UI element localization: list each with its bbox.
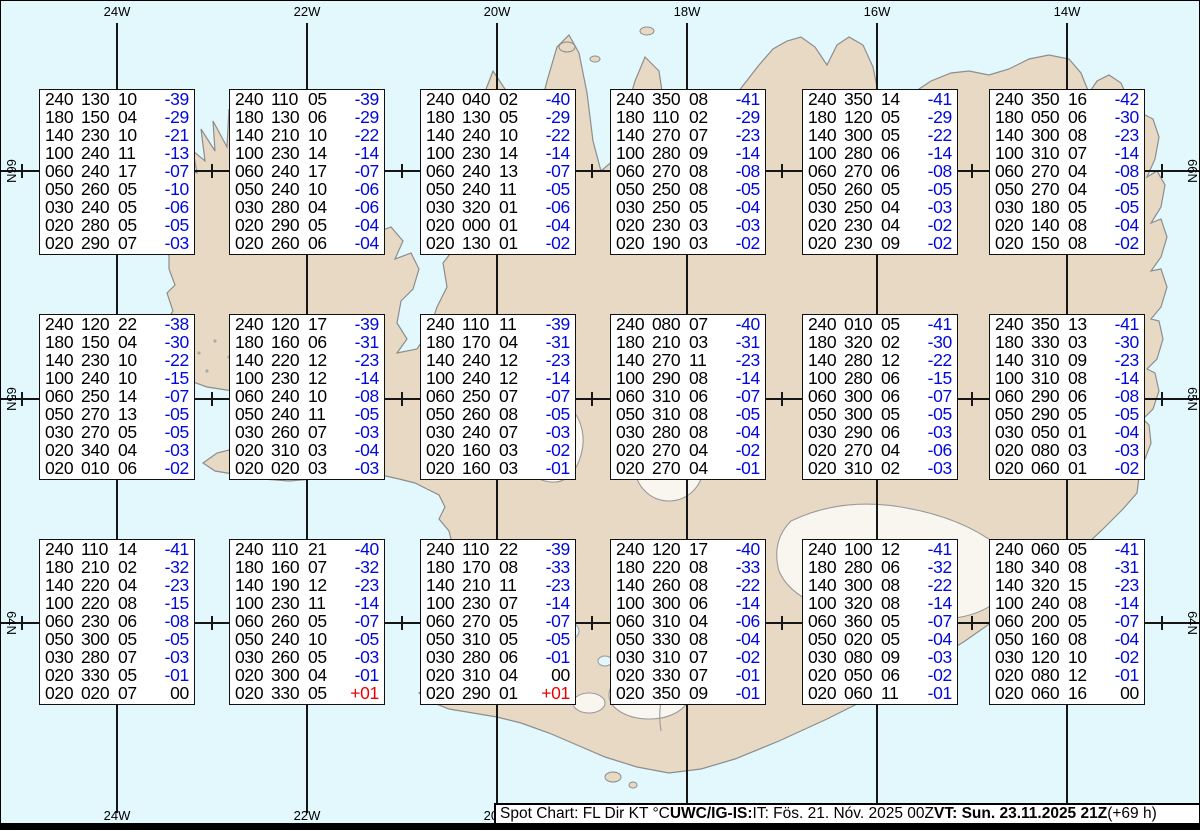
spot-data-row: 18012005-29	[808, 109, 952, 127]
fl-value: 140	[426, 352, 462, 370]
kt-value: 11	[308, 406, 334, 424]
kt-value: 06	[881, 163, 907, 181]
spot-data-row: 14030005-22	[808, 127, 952, 145]
kt-value: 08	[1068, 235, 1094, 253]
spot-data-row: 24001005-41	[808, 316, 952, 334]
kt-value: 05	[308, 649, 334, 667]
kt-value: 06	[881, 388, 907, 406]
kt-value: 17	[118, 163, 144, 181]
dir-value: 240	[271, 163, 308, 181]
spot-data-row: 10028009-14	[616, 145, 760, 163]
fl-value: 020	[45, 235, 81, 253]
fl-value: 180	[235, 334, 271, 352]
spot-data-row: 02033005-01	[45, 667, 189, 685]
temp-value: -08	[144, 613, 189, 631]
latitude-label-right: 65N	[1185, 387, 1200, 411]
temp-value: -06	[144, 199, 189, 217]
temp-value: -23	[715, 352, 760, 370]
kt-value: 05	[118, 424, 144, 442]
temp-value: -22	[144, 352, 189, 370]
kt-value: 06	[881, 424, 907, 442]
spot-chart-map: 24W24W22W22W20W20W18W18W16W16W14W14W66N6…	[0, 0, 1200, 830]
fl-value: 020	[616, 235, 652, 253]
spot-data-row: 06027006-08	[808, 163, 952, 181]
fl-value: 050	[995, 181, 1031, 199]
temp-value: -07	[525, 613, 570, 631]
spot-data-row: 05024011-05	[426, 181, 570, 199]
fl-value: 100	[426, 145, 462, 163]
kt-value: 08	[689, 559, 715, 577]
spot-data-row: 06036005-07	[808, 613, 952, 631]
fl-value: 020	[235, 442, 271, 460]
temp-value: -02	[907, 217, 952, 235]
grid-tick-icon	[205, 616, 219, 630]
fl-value: 180	[45, 559, 81, 577]
dir-value: 310	[1031, 352, 1068, 370]
temp-value: 00	[1094, 685, 1139, 703]
spot-data-row: 14030008-23	[995, 127, 1139, 145]
spot-data-row: 05024011-05	[235, 406, 379, 424]
latitude-label-right: 66N	[1185, 159, 1200, 183]
temp-value: -21	[144, 127, 189, 145]
spot-data-row: 14022012-23	[235, 352, 379, 370]
dir-value: 250	[81, 388, 118, 406]
kt-value: 08	[689, 370, 715, 388]
kt-value: 22	[499, 541, 525, 559]
dir-value: 230	[81, 613, 118, 631]
spot-data-row: 02035009-01	[616, 685, 760, 703]
spot-data-box: 24001005-4118032002-3014028012-221002800…	[802, 314, 958, 480]
dir-value: 250	[652, 199, 689, 217]
kt-value: 06	[881, 145, 907, 163]
dir-value: 280	[844, 370, 881, 388]
spot-data-row: 02029007-03	[45, 235, 189, 253]
spot-data-row: 06020005-07	[995, 613, 1139, 631]
dir-value: 310	[271, 442, 308, 460]
spot-data-row: 02033007-01	[616, 667, 760, 685]
dir-value: 150	[81, 109, 118, 127]
fl-value: 030	[235, 424, 271, 442]
temp-value: -05	[144, 217, 189, 235]
fl-value: 030	[808, 649, 844, 667]
spot-data-row: 02005006-02	[808, 667, 952, 685]
dir-value: 050	[844, 667, 881, 685]
dir-value: 270	[81, 406, 118, 424]
temp-value: -41	[907, 316, 952, 334]
fl-value: 060	[426, 388, 462, 406]
fl-value: 020	[235, 460, 271, 478]
dir-value: 120	[271, 316, 308, 334]
dir-value: 240	[462, 352, 499, 370]
spot-data-row: 10030006-14	[616, 595, 760, 613]
temp-value: -05	[334, 406, 379, 424]
dir-value: 290	[462, 685, 499, 703]
kt-value: 04	[1068, 163, 1094, 181]
dir-value: 120	[652, 541, 689, 559]
kt-value: 12	[881, 352, 907, 370]
kt-value: 05	[118, 199, 144, 217]
temp-value: -31	[715, 334, 760, 352]
latitude-label-left: 66N	[4, 159, 19, 183]
grid-tick-icon	[395, 164, 409, 178]
kt-value: 03	[689, 235, 715, 253]
dir-value: 330	[271, 685, 308, 703]
spot-data-row: 06027008-08	[616, 163, 760, 181]
spot-data-row: 06023006-08	[45, 613, 189, 631]
temp-value: -02	[1094, 460, 1139, 478]
fl-value: 020	[426, 667, 462, 685]
kt-value: 05	[499, 109, 525, 127]
kt-value: 05	[308, 685, 334, 703]
kt-value: 08	[881, 577, 907, 595]
spot-data-row: 02023003-03	[616, 217, 760, 235]
fl-value: 240	[995, 541, 1031, 559]
spot-data-row: 24004002-40	[426, 91, 570, 109]
dir-value: 290	[271, 217, 308, 235]
grid-tick-icon	[965, 164, 979, 178]
temp-value: -06	[525, 199, 570, 217]
temp-value: -32	[907, 559, 952, 577]
kt-value: 13	[1068, 316, 1094, 334]
kt-value: 10	[308, 127, 334, 145]
temp-value: -41	[907, 91, 952, 109]
spot-data-row: 24035016-42	[995, 91, 1139, 109]
dir-value: 300	[844, 388, 881, 406]
kt-value: 07	[689, 667, 715, 685]
temp-value: -31	[1094, 559, 1139, 577]
spot-data-row: 14019012-23	[235, 577, 379, 595]
spot-data-row: 05024010-06	[235, 181, 379, 199]
fl-value: 030	[808, 199, 844, 217]
fl-value: 060	[808, 613, 844, 631]
fl-value: 180	[808, 334, 844, 352]
temp-value: -29	[907, 109, 952, 127]
temp-value: -02	[1094, 235, 1139, 253]
dir-value: 280	[844, 559, 881, 577]
kt-value: 08	[499, 559, 525, 577]
fl-value: 020	[808, 685, 844, 703]
temp-value: -33	[715, 559, 760, 577]
dir-value: 230	[844, 235, 881, 253]
spot-data-row: 02001006-02	[45, 460, 189, 478]
dir-value: 180	[1031, 199, 1068, 217]
kt-value: 07	[308, 424, 334, 442]
grid-tick-icon	[1155, 164, 1169, 178]
temp-value: -02	[715, 442, 760, 460]
temp-value: -41	[144, 541, 189, 559]
dir-value: 310	[1031, 145, 1068, 163]
kt-value: 06	[1068, 388, 1094, 406]
fl-value: 020	[616, 667, 652, 685]
fl-value: 180	[45, 109, 81, 127]
fl-value: 060	[45, 163, 81, 181]
fl-value: 050	[45, 631, 81, 649]
fl-value: 100	[616, 145, 652, 163]
spot-data-row: 24012017-39	[235, 316, 379, 334]
dir-value: 210	[462, 577, 499, 595]
spot-data-row: 03025004-03	[808, 199, 952, 217]
fl-value: 140	[808, 127, 844, 145]
kt-value: 05	[881, 631, 907, 649]
spot-data-row: 24012017-40	[616, 541, 760, 559]
latitude-label-left: 64N	[4, 611, 19, 635]
spot-data-row: 03028007-03	[45, 649, 189, 667]
kt-value: 07	[689, 316, 715, 334]
temp-value: -15	[144, 370, 189, 388]
fl-value: 060	[235, 388, 271, 406]
spot-data-row: 24035014-41	[808, 91, 952, 109]
kt-value: 14	[118, 541, 144, 559]
kt-value: 12	[499, 352, 525, 370]
dir-value: 310	[652, 406, 689, 424]
temp-value: -02	[144, 460, 189, 478]
temp-value: -03	[907, 424, 952, 442]
kt-value: 05	[118, 217, 144, 235]
longitude-label-top: 14W	[1054, 5, 1081, 18]
temp-value: -01	[525, 649, 570, 667]
fl-value: 140	[235, 352, 271, 370]
temp-value: -01	[144, 667, 189, 685]
fl-value: 020	[808, 667, 844, 685]
longitude-label-bottom: 24W	[104, 809, 131, 822]
dir-value: 010	[81, 460, 118, 478]
temp-value: -39	[334, 91, 379, 109]
temp-value: -03	[334, 649, 379, 667]
spot-data-row: 05025008-05	[616, 181, 760, 199]
temp-value: -14	[715, 370, 760, 388]
temp-value: -23	[144, 577, 189, 595]
temp-value: -05	[525, 181, 570, 199]
kt-value: 10	[308, 631, 334, 649]
temp-value: -05	[144, 406, 189, 424]
fl-value: 100	[995, 595, 1031, 613]
temp-value: -39	[525, 316, 570, 334]
fl-value: 020	[426, 685, 462, 703]
fl-value: 100	[45, 595, 81, 613]
spot-data-row: 03029006-03	[808, 424, 952, 442]
dir-value: 220	[81, 595, 118, 613]
spot-data-row: 02006001-02	[995, 460, 1139, 478]
spot-data-row: 05027004-05	[995, 181, 1139, 199]
spot-data-row: 10022008-15	[45, 595, 189, 613]
kt-value: 06	[689, 388, 715, 406]
fl-value: 060	[426, 163, 462, 181]
longitude-label-top: 16W	[864, 5, 891, 18]
latitude-label-right: 64N	[1185, 611, 1200, 635]
fl-value: 020	[995, 442, 1031, 460]
fl-value: 140	[616, 577, 652, 595]
fl-value: 180	[235, 559, 271, 577]
status-text-part: (+69 h)	[1107, 805, 1157, 823]
temp-value: -31	[334, 334, 379, 352]
temp-value: -05	[1094, 199, 1139, 217]
kt-value: 12	[881, 541, 907, 559]
fl-value: 050	[808, 406, 844, 424]
grid-tick-icon	[1155, 392, 1169, 406]
kt-value: 04	[689, 613, 715, 631]
fl-value: 030	[45, 649, 81, 667]
spot-data-row: 24011022-39	[426, 541, 570, 559]
spot-data-row: 06024017-07	[45, 163, 189, 181]
temp-value: -14	[1094, 595, 1139, 613]
kt-value: 02	[499, 91, 525, 109]
kt-value: 12	[1068, 667, 1094, 685]
kt-value: 12	[499, 370, 525, 388]
dir-value: 110	[462, 541, 499, 559]
temp-value: -01	[715, 685, 760, 703]
dir-value: 310	[1031, 370, 1068, 388]
dir-value: 040	[462, 91, 499, 109]
fl-value: 100	[426, 595, 462, 613]
fl-value: 140	[616, 127, 652, 145]
dir-value: 230	[271, 595, 308, 613]
temp-value: -14	[334, 145, 379, 163]
kt-value: 04	[118, 334, 144, 352]
fl-value: 100	[235, 595, 271, 613]
dir-value: 130	[271, 109, 308, 127]
latitude-label-left: 65N	[4, 387, 19, 411]
temp-value: -08	[1094, 163, 1139, 181]
status-text-part: UWC/IG-IS:	[670, 805, 753, 823]
temp-value: -23	[1094, 577, 1139, 595]
dir-value: 280	[652, 424, 689, 442]
temp-value: 00	[525, 667, 570, 685]
spot-data-box: 24012017-4018022008-3314026008-221003000…	[610, 539, 766, 705]
temp-value: -02	[715, 649, 760, 667]
dir-value: 260	[271, 424, 308, 442]
kt-value: 14	[308, 145, 334, 163]
kt-value: 04	[118, 442, 144, 460]
kt-value: 03	[1068, 442, 1094, 460]
dir-value: 330	[1031, 334, 1068, 352]
spot-data-row: 10032008-14	[808, 595, 952, 613]
dir-value: 140	[1031, 217, 1068, 235]
spot-data-row: 03005001-04	[995, 424, 1139, 442]
temp-value: -40	[715, 316, 760, 334]
kt-value: 06	[118, 613, 144, 631]
dir-value: 250	[462, 388, 499, 406]
spot-data-row: 10024012-14	[426, 370, 570, 388]
dir-value: 270	[1031, 181, 1068, 199]
spot-data-row: 10023014-14	[426, 145, 570, 163]
fl-value: 240	[235, 316, 271, 334]
temp-value: -29	[334, 109, 379, 127]
kt-value: 05	[689, 199, 715, 217]
status-bar: Spot Chart: FL Dir KT °C UWC/IG-IS: IT: …	[494, 803, 1200, 825]
fl-value: 030	[426, 424, 462, 442]
temp-value: -22	[907, 127, 952, 145]
dir-value: 270	[652, 442, 689, 460]
temp-value: -33	[525, 559, 570, 577]
fl-value: 060	[45, 388, 81, 406]
temp-value: -03	[907, 199, 952, 217]
temp-value: -03	[907, 649, 952, 667]
fl-value: 050	[45, 406, 81, 424]
dir-value: 270	[652, 460, 689, 478]
spot-data-row: 0200200700	[45, 685, 189, 703]
spot-data-row: 02008003-03	[995, 442, 1139, 460]
temp-value: -08	[1094, 388, 1139, 406]
kt-value: 06	[308, 109, 334, 127]
spot-data-row: 05016008-04	[995, 631, 1139, 649]
kt-value: 05	[308, 613, 334, 631]
status-text-part: Spot Chart: FL Dir KT °C	[500, 805, 670, 823]
spot-data-row: 02008012-01	[995, 667, 1139, 685]
spot-data-row: 24013010-39	[45, 91, 189, 109]
spot-data-box: 24013010-3918015004-2914023010-211002401…	[39, 89, 195, 255]
kt-value: 07	[499, 424, 525, 442]
dir-value: 240	[271, 181, 308, 199]
dir-value: 060	[1031, 460, 1068, 478]
dir-value: 150	[1031, 235, 1068, 253]
fl-value: 100	[45, 370, 81, 388]
temp-value: -39	[334, 316, 379, 334]
dir-value: 260	[271, 235, 308, 253]
temp-value: -04	[715, 424, 760, 442]
kt-value: 07	[499, 388, 525, 406]
dir-value: 240	[81, 145, 118, 163]
dir-value: 290	[1031, 388, 1068, 406]
fl-value: 020	[235, 685, 271, 703]
dir-value: 300	[652, 595, 689, 613]
fl-value: 180	[45, 334, 81, 352]
spot-data-row: 02029005-04	[235, 217, 379, 235]
fl-value: 030	[235, 649, 271, 667]
spot-data-row: 18013006-29	[235, 109, 379, 127]
spot-data-row: 24035008-41	[616, 91, 760, 109]
dir-value: 060	[1031, 685, 1068, 703]
spot-data-row: 02016003-02	[426, 442, 570, 460]
kt-value: 11	[499, 577, 525, 595]
dir-value: 230	[844, 217, 881, 235]
fl-value: 100	[808, 370, 844, 388]
temp-value: -15	[144, 595, 189, 613]
kt-value: 07	[689, 649, 715, 667]
spot-data-row: 18021002-32	[45, 559, 189, 577]
kt-value: 05	[881, 127, 907, 145]
temp-value: -05	[334, 631, 379, 649]
spot-data-row: 05027013-05	[45, 406, 189, 424]
spot-data-row: 06024017-07	[235, 163, 379, 181]
temp-value: -04	[1094, 217, 1139, 235]
temp-value: -01	[715, 460, 760, 478]
spot-data-row: 18017008-33	[426, 559, 570, 577]
fl-value: 060	[235, 163, 271, 181]
spot-data-row: 03012010-02	[995, 649, 1139, 667]
fl-value: 050	[995, 631, 1031, 649]
fl-value: 020	[808, 235, 844, 253]
kt-value: 06	[308, 334, 334, 352]
kt-value: 17	[308, 316, 334, 334]
spot-data-box: 24012017-3918016006-3114022012-231002301…	[229, 314, 385, 480]
dir-value: 190	[271, 577, 308, 595]
spot-data-row: 02028005-05	[45, 217, 189, 235]
temp-value: -04	[907, 631, 952, 649]
fl-value: 050	[808, 181, 844, 199]
fl-value: 180	[426, 109, 462, 127]
dir-value: 220	[652, 559, 689, 577]
dir-value: 230	[81, 352, 118, 370]
temp-value: -14	[1094, 370, 1139, 388]
dir-value: 330	[81, 667, 118, 685]
fl-value: 140	[426, 127, 462, 145]
kt-value: 03	[1068, 334, 1094, 352]
fl-value: 020	[235, 235, 271, 253]
kt-value: 07	[689, 127, 715, 145]
dir-value: 260	[462, 406, 499, 424]
spot-data-row: 02034004-03	[45, 442, 189, 460]
temp-value: -15	[907, 370, 952, 388]
